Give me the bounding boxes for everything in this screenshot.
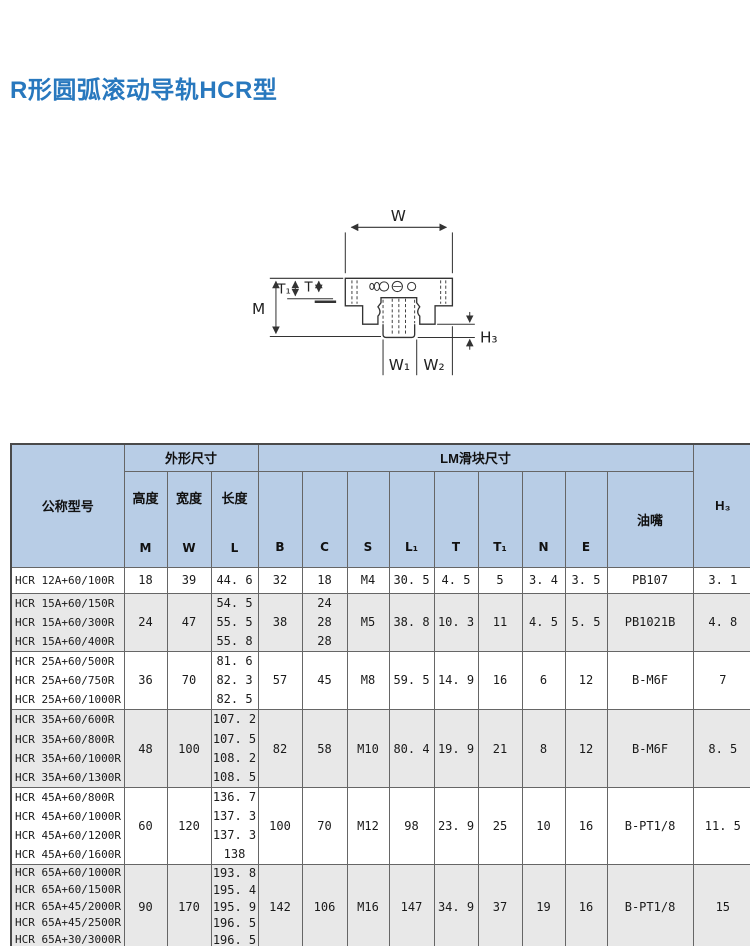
table-row: HCR 12A+60/100R183944. 63218M430. 54. 55… <box>11 567 750 593</box>
cell-E: 5. 5 <box>565 593 607 651</box>
model-name: HCR 35A+60/1000R <box>12 749 124 768</box>
cell-N: 3. 4 <box>522 567 565 593</box>
dim-label-H3: H₃ <box>480 329 498 347</box>
model-name: HCR 65A+30/3000R <box>12 932 124 946</box>
header-model: 公称型号 <box>11 444 124 567</box>
header-height: 高度 M <box>124 471 167 567</box>
model-name: HCR 65A+60/1500R <box>12 882 124 899</box>
header-col-N: N <box>522 471 565 567</box>
cell-T1: 37 <box>478 865 522 946</box>
model-name: HCR 65A+60/1000R <box>12 865 124 882</box>
model-cell: HCR 15A+60/150RHCR 15A+60/300RHCR 15A+60… <box>11 593 124 651</box>
cell-T1: 5 <box>478 567 522 593</box>
spec-table: 公称型号 外形尺寸 LM滑块尺寸 H₃ 高度 M 宽度 <box>10 443 750 946</box>
cell-T1: 25 <box>478 788 522 865</box>
model-name: HCR 25A+60/1000R <box>12 690 124 709</box>
cell-N: 4. 5 <box>522 593 565 651</box>
model-name: HCR 15A+60/300R <box>12 613 124 632</box>
cell-B: 100 <box>258 788 302 865</box>
rail-cross-section-diagram: W M T₁ T H₃ W₁ W₂ <box>228 182 534 394</box>
cell-L1: 30. 5 <box>389 567 434 593</box>
cell-T: 14. 9 <box>434 651 478 710</box>
cell-M: 36 <box>124 651 167 710</box>
cell-B: 82 <box>258 710 302 788</box>
model-cell: HCR 25A+60/500RHCR 25A+60/750RHCR 25A+60… <box>11 651 124 710</box>
cell-W: 100 <box>167 710 211 788</box>
table-row: HCR 65A+60/1000RHCR 65A+60/1500RHCR 65A+… <box>11 865 750 946</box>
cell-C: 18 <box>302 567 347 593</box>
cell-T: 4. 5 <box>434 567 478 593</box>
model-name: HCR 65A+45/2000R <box>12 899 124 916</box>
table-row: HCR 45A+60/800RHCR 45A+60/1000RHCR 45A+6… <box>11 788 750 865</box>
cell-T1: 11 <box>478 593 522 651</box>
model-cell: HCR 65A+60/1000RHCR 65A+60/1500RHCR 65A+… <box>11 865 124 946</box>
model-name: HCR 45A+60/800R <box>12 788 124 807</box>
cell-B: 57 <box>258 651 302 710</box>
model-name: HCR 15A+60/400R <box>12 632 124 651</box>
cell-M: 18 <box>124 567 167 593</box>
cell-H3: 3. 1 <box>693 567 750 593</box>
cell-M: 90 <box>124 865 167 946</box>
cell-N: 19 <box>522 865 565 946</box>
cell-W: 170 <box>167 865 211 946</box>
cell-T1: 21 <box>478 710 522 788</box>
model-cell: HCR 12A+60/100R <box>11 567 124 593</box>
dimension-drawing: W M T₁ T H₃ W₁ W₂ <box>228 182 534 394</box>
cell-S: M12 <box>347 788 389 865</box>
cell-C: 45 <box>302 651 347 710</box>
header-outer-dims: 外形尺寸 <box>124 444 258 471</box>
cell-H3: 15 <box>693 865 750 946</box>
header-col-T: T <box>434 471 478 567</box>
model-name: HCR 35A+60/1300R <box>12 768 124 787</box>
header-height-symbol: M <box>140 541 152 555</box>
header-group-row: 公称型号 外形尺寸 LM滑块尺寸 H₃ <box>11 444 750 471</box>
dim-label-W1: W₁ <box>389 356 410 374</box>
page-title: R形圆弧滚动导轨HCR型 <box>10 70 277 105</box>
header-nipple: 油嘴 <box>607 471 693 567</box>
table-row: HCR 15A+60/150RHCR 15A+60/300RHCR 15A+60… <box>11 593 750 651</box>
cell-L1: 38. 8 <box>389 593 434 651</box>
cell-C: 70 <box>302 788 347 865</box>
dim-label-T1: T₁ <box>276 283 290 298</box>
header-length-symbol: L <box>231 541 239 555</box>
cell-nipple: PB1021B <box>607 593 693 651</box>
cell-L: 54. 555. 555. 8 <box>211 593 258 651</box>
cell-W: 120 <box>167 788 211 865</box>
model-name: HCR 25A+60/750R <box>12 671 124 690</box>
dim-label-W2: W₂ <box>423 356 444 374</box>
model-name: HCR 65A+45/2500R <box>12 915 124 932</box>
cell-T: 34. 9 <box>434 865 478 946</box>
header-col-C: C <box>302 471 347 567</box>
cell-nipple: PB107 <box>607 567 693 593</box>
model-name: HCR 35A+60/600R <box>12 710 124 729</box>
cell-E: 12 <box>565 710 607 788</box>
dim-label-T: T <box>304 281 314 296</box>
cell-W: 70 <box>167 651 211 710</box>
cell-nipple: B-PT1/8 <box>607 865 693 946</box>
cell-L1: 98 <box>389 788 434 865</box>
cell-H3: 4. 8 <box>693 593 750 651</box>
cell-M: 24 <box>124 593 167 651</box>
header-width-symbol: W <box>182 541 195 555</box>
model-name: HCR 45A+60/1600R <box>12 845 124 864</box>
cell-T1: 16 <box>478 651 522 710</box>
cell-nipple: B-PT1/8 <box>607 788 693 865</box>
cell-L1: 80. 4 <box>389 710 434 788</box>
cell-L1: 147 <box>389 865 434 946</box>
cell-S: M8 <box>347 651 389 710</box>
table-row: HCR 25A+60/500RHCR 25A+60/750RHCR 25A+60… <box>11 651 750 710</box>
cell-N: 8 <box>522 710 565 788</box>
cell-L1: 59. 5 <box>389 651 434 710</box>
catalog-page: R形圆弧滚动导轨HCR型 <box>0 0 750 946</box>
model-name: HCR 25A+60/500R <box>12 652 124 671</box>
cell-E: 16 <box>565 788 607 865</box>
cell-C: 242828 <box>302 593 347 651</box>
spec-table-wrap: 公称型号 外形尺寸 LM滑块尺寸 H₃ 高度 M 宽度 <box>0 443 750 946</box>
cell-T: 19. 9 <box>434 710 478 788</box>
cell-S: M4 <box>347 567 389 593</box>
model-name: HCR 15A+60/150R <box>12 594 124 613</box>
cell-B: 38 <box>258 593 302 651</box>
model-name: HCR 45A+60/1200R <box>12 826 124 845</box>
cell-S: M16 <box>347 865 389 946</box>
header-h3: H₃ <box>693 444 750 567</box>
cell-C: 106 <box>302 865 347 946</box>
cell-W: 39 <box>167 567 211 593</box>
header-col-S: S <box>347 471 389 567</box>
header-width: 宽度 W <box>167 471 211 567</box>
cell-nipple: B-M6F <box>607 651 693 710</box>
cell-L: 136. 7137. 3137. 3138 <box>211 788 258 865</box>
cell-E: 12 <box>565 651 607 710</box>
model-cell: HCR 35A+60/600RHCR 35A+60/800RHCR 35A+60… <box>11 710 124 788</box>
cell-N: 10 <box>522 788 565 865</box>
cell-T: 23. 9 <box>434 788 478 865</box>
cell-B: 32 <box>258 567 302 593</box>
cell-L: 81. 682. 382. 5 <box>211 651 258 710</box>
header-col-E: E <box>565 471 607 567</box>
header-length: 长度 L <box>211 471 258 567</box>
header-length-label: 长度 <box>221 488 247 507</box>
cell-N: 6 <box>522 651 565 710</box>
dim-label-W: W <box>391 207 406 225</box>
cell-nipple: B-M6F <box>607 710 693 788</box>
cell-L: 107. 2107. 5108. 2108. 5 <box>211 710 258 788</box>
cell-L: 193. 8195. 4195. 9196. 5196. 5 <box>211 865 258 946</box>
cell-H3: 11. 5 <box>693 788 750 865</box>
header-block-dims: LM滑块尺寸 <box>258 444 693 471</box>
model-cell: HCR 45A+60/800RHCR 45A+60/1000RHCR 45A+6… <box>11 788 124 865</box>
cell-H3: 8. 5 <box>693 710 750 788</box>
header-col-T1: T₁ <box>478 471 522 567</box>
cell-S: M10 <box>347 710 389 788</box>
cell-C: 58 <box>302 710 347 788</box>
cell-M: 60 <box>124 788 167 865</box>
cell-T: 10. 3 <box>434 593 478 651</box>
cell-E: 3. 5 <box>565 567 607 593</box>
spec-table-body: HCR 12A+60/100R183944. 63218M430. 54. 55… <box>11 567 750 946</box>
cell-L: 44. 6 <box>211 567 258 593</box>
model-name: HCR 45A+60/1000R <box>12 807 124 826</box>
header-col-L1: L₁ <box>389 471 434 567</box>
cell-W: 47 <box>167 593 211 651</box>
cell-S: M5 <box>347 593 389 651</box>
cell-M: 48 <box>124 710 167 788</box>
model-name: HCR 35A+60/800R <box>12 730 124 749</box>
cell-H3: 7 <box>693 651 750 710</box>
model-name: HCR 12A+60/100R <box>12 568 124 593</box>
header-col-B: B <box>258 471 302 567</box>
dim-label-M: M <box>252 300 265 318</box>
table-row: HCR 35A+60/600RHCR 35A+60/800RHCR 35A+60… <box>11 710 750 788</box>
cell-B: 142 <box>258 865 302 946</box>
cell-E: 16 <box>565 865 607 946</box>
header-height-label: 高度 <box>132 488 158 507</box>
header-width-label: 宽度 <box>176 488 202 507</box>
